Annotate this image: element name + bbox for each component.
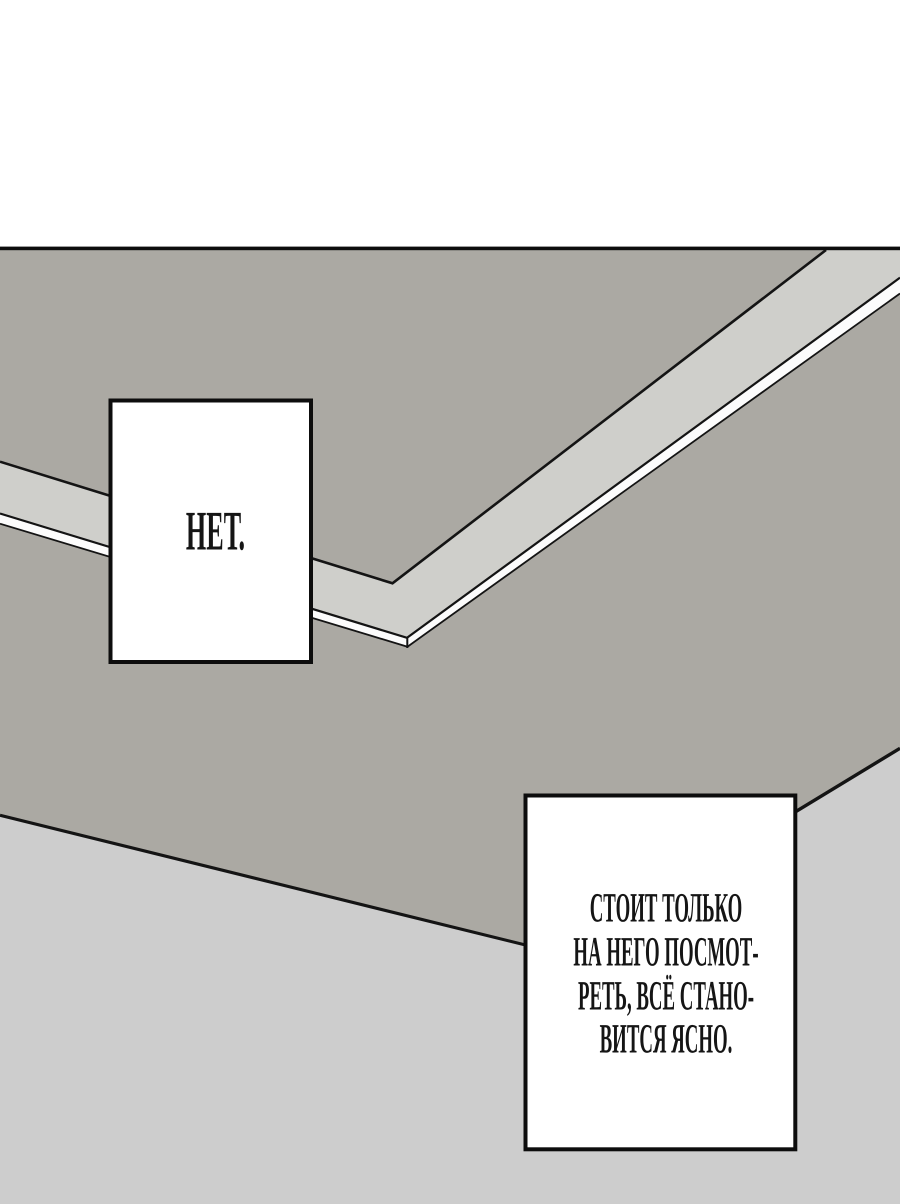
svg-text:РЕТЬ, ВСЁ СТАНО-: РЕТЬ, ВСЁ СТАНО- (578, 974, 754, 1020)
svg-text:НЕТ.: НЕТ. (186, 501, 245, 563)
svg-text:ВИТСЯ ЯСНО.: ВИТСЯ ЯСНО. (600, 1016, 733, 1062)
svg-text:СТОИТ ТОЛЬКО: СТОИТ ТОЛЬКО (590, 886, 743, 932)
svg-text:НА НЕГО ПОСМОТ-: НА НЕГО ПОСМОТ- (573, 930, 758, 976)
